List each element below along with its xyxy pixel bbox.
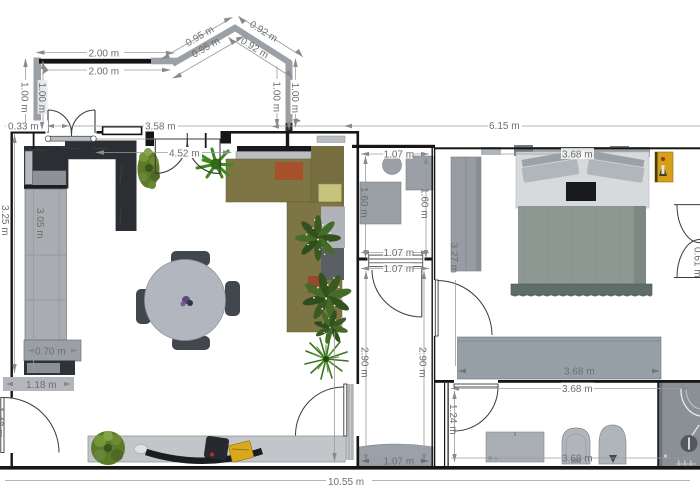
svg-text:0.70 m: 0.70 m bbox=[35, 347, 66, 358]
svg-text:3.68 m: 3.68 m bbox=[562, 384, 593, 395]
svg-text:1.00 m: 1.00 m bbox=[19, 82, 30, 113]
svg-text:3.68 m: 3.68 m bbox=[564, 367, 595, 378]
svg-text:1.24 m: 1.24 m bbox=[447, 404, 458, 435]
svg-text:3.25 m: 3.25 m bbox=[0, 205, 10, 236]
svg-text:2.00 m: 2.00 m bbox=[89, 67, 120, 78]
svg-text:6.15 m: 6.15 m bbox=[489, 121, 520, 132]
svg-text:1.60 m: 1.60 m bbox=[358, 187, 369, 218]
svg-text:1.07 m: 1.07 m bbox=[384, 248, 415, 259]
svg-text:1.07 m: 1.07 m bbox=[384, 457, 415, 468]
svg-text:1.48 m: 1.48 m bbox=[0, 407, 5, 438]
svg-text:10.55 m: 10.55 m bbox=[328, 477, 364, 488]
svg-text:1.60 m: 1.60 m bbox=[419, 188, 430, 219]
svg-text:1.00 m: 1.00 m bbox=[36, 83, 47, 114]
svg-text:1.07 m: 1.07 m bbox=[384, 264, 415, 275]
svg-text:3.68 m: 3.68 m bbox=[562, 150, 593, 161]
svg-text:1.18 m: 1.18 m bbox=[26, 380, 57, 391]
svg-text:2.00 m: 2.00 m bbox=[89, 49, 120, 60]
svg-text:3.68 m: 3.68 m bbox=[562, 454, 593, 465]
svg-text:2.90 m: 2.90 m bbox=[417, 347, 428, 378]
svg-text:3.05 m: 3.05 m bbox=[34, 208, 45, 239]
svg-text:1.00 m: 1.00 m bbox=[289, 83, 300, 114]
svg-text:2.90 m: 2.90 m bbox=[359, 347, 370, 378]
svg-text:0.33 m: 0.33 m bbox=[8, 122, 39, 133]
svg-text:4.52 m: 4.52 m bbox=[169, 149, 200, 160]
svg-text:1.07 m: 1.07 m bbox=[384, 150, 415, 161]
svg-text:1.00 m: 1.00 m bbox=[271, 82, 282, 113]
svg-text:0.61 m: 0.61 m bbox=[692, 247, 700, 278]
svg-text:3.27 m: 3.27 m bbox=[448, 243, 459, 274]
svg-text:3.58 m: 3.58 m bbox=[145, 122, 176, 133]
